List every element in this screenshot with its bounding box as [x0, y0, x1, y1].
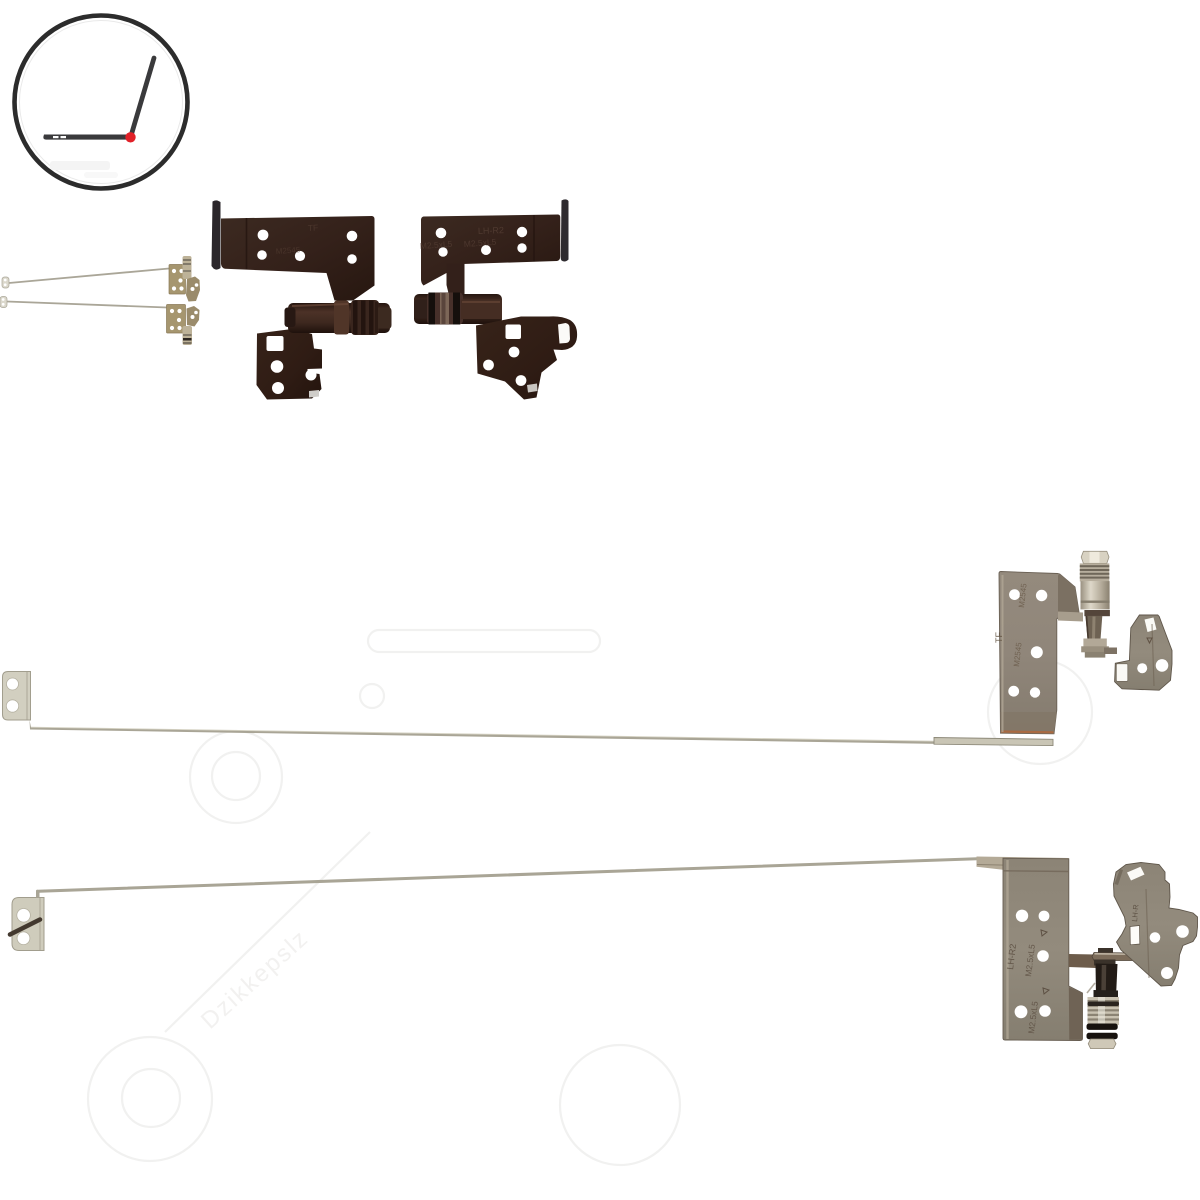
svg-text:LH-R2: LH-R2 — [478, 225, 504, 236]
svg-text:TF: TF — [308, 222, 319, 233]
svg-text:M2545: M2545 — [276, 245, 302, 256]
svg-text:TF: TF — [994, 632, 1004, 643]
svg-text:LH-R: LH-R — [1130, 903, 1141, 922]
